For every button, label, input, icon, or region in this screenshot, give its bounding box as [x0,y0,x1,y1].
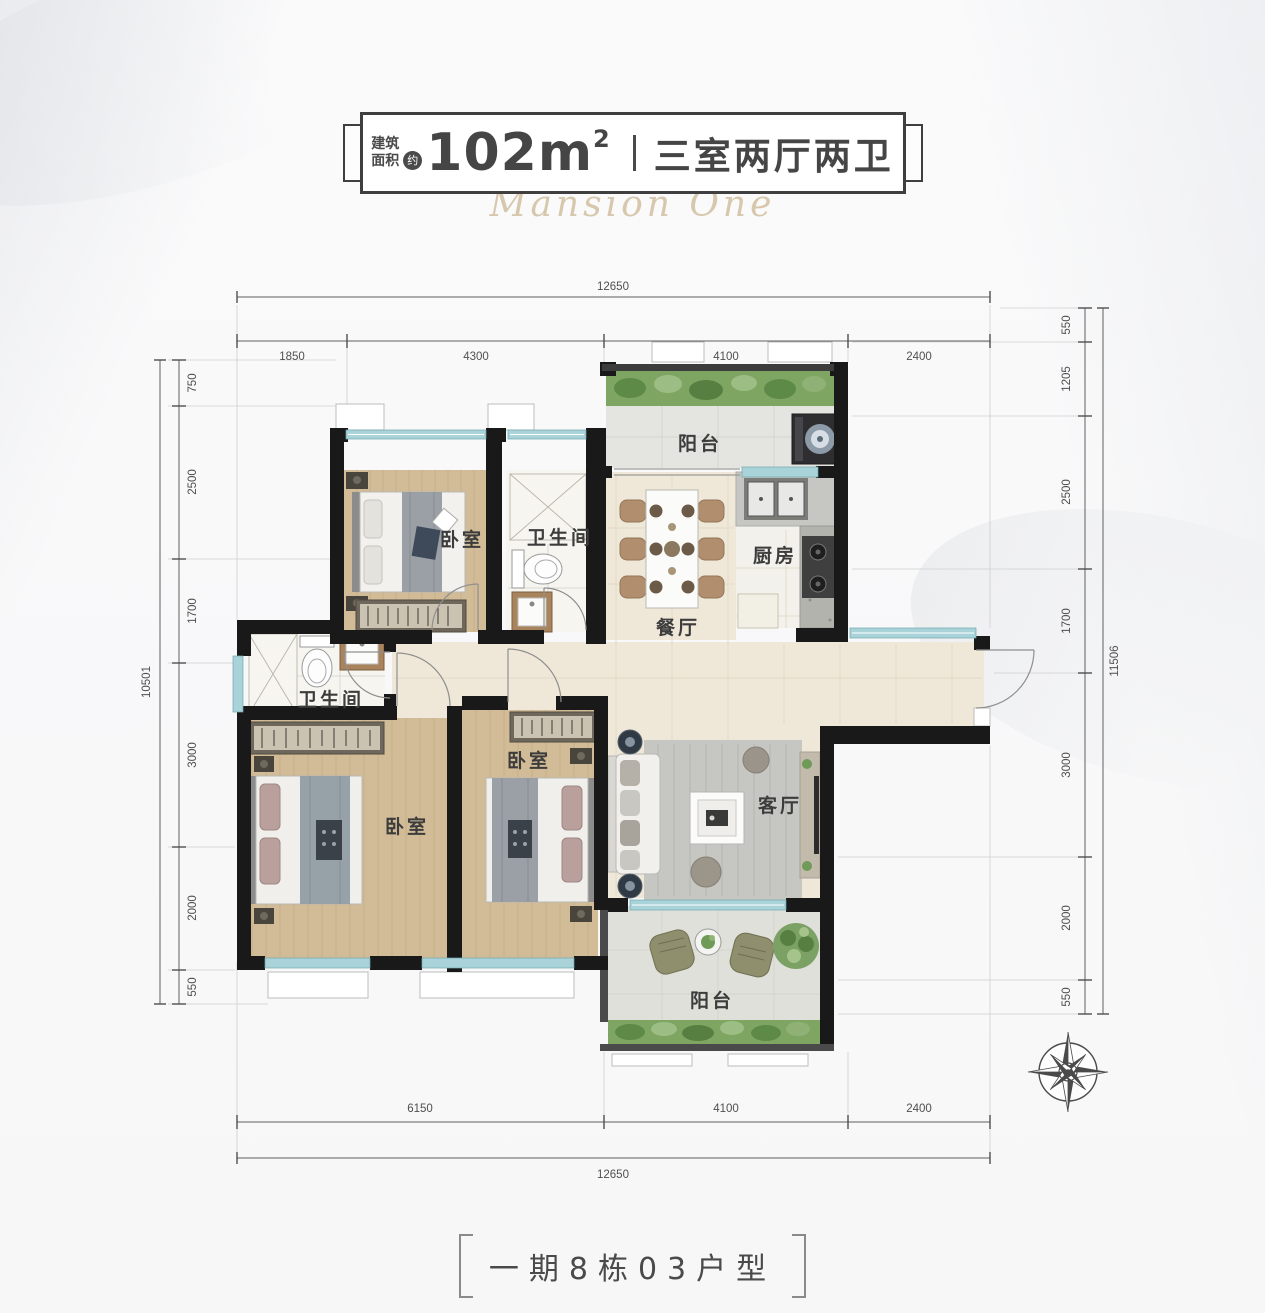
label-balcony-top: 阳台 [678,432,722,455]
dimensions-bottom: 6150 4100 2400 12650 [237,1103,990,1181]
label-bedroom-master: 卧室 [385,815,429,838]
dim-left-seg: 2000 [187,895,199,921]
dim-top-seg: 2400 [906,351,932,363]
dim-left-seg: 750 [187,373,199,392]
toilet-icon [300,636,334,687]
label-bedroom-top: 卧室 [440,528,484,551]
dining-table-icon [620,490,724,608]
fridge-icon [738,594,778,628]
wardrobe-icon [250,722,384,754]
badge-divider [633,135,636,171]
washing-machine-icon [792,414,836,464]
footer-unit-label: 一期8栋03户型 [0,1234,1265,1298]
dim-right-overall: 11506 [1109,645,1121,676]
label-living: 客厅 [758,794,802,817]
area-value: 102m2 [426,123,610,183]
compass-icon [1028,1032,1108,1112]
dim-right-seg: 550 [1061,315,1073,334]
pouf-icon [691,857,721,887]
dimensions-left: 10501 750 2500 1700 3000 2000 550 [141,360,199,1004]
potted-plant-icon [773,923,819,969]
dim-left-seg: 550 [187,977,199,996]
dim-right-seg: 550 [1061,987,1073,1006]
layout-summary: 三室两厅两卫 [654,126,894,180]
dim-right-seg: 2000 [1061,905,1073,931]
dim-left-seg: 3000 [187,742,199,768]
label-dining: 餐厅 [656,616,700,639]
dim-right-seg: 3000 [1061,752,1073,778]
dim-top-overall: 12650 [597,281,629,293]
dim-top-seg: 4300 [463,351,489,363]
dim-right-seg: 2500 [1061,479,1073,505]
dimensions-right: 550 1205 2500 1700 3000 2000 550 11506 [1061,308,1121,1014]
wardrobe-icon [510,712,596,742]
planter-top [606,370,834,406]
dimensions-top: 12650 1850 4300 4100 2400 [237,281,990,363]
balcony-table-icon [695,929,721,955]
dim-bottom-seg: 6150 [407,1103,433,1115]
label-balcony-bottom: 阳台 [690,989,734,1012]
label-bathroom-top: 卫生间 [527,526,593,549]
unit-label-text: 一期8栋03户型 [489,1244,776,1288]
left-bracket [459,1234,473,1298]
dim-left-seg: 2500 [187,469,199,495]
dim-right-seg: 1205 [1061,366,1073,392]
area-exponent: 2 [593,125,611,153]
dim-bottom-seg: 4100 [713,1103,739,1115]
planter-bottom [608,1020,820,1044]
right-bracket [792,1234,806,1298]
wardrobe-icon [356,600,466,632]
area-prefix-line1: 建筑 [371,136,399,154]
label-kitchen: 厨房 [753,544,797,567]
dim-left-overall: 10501 [141,666,153,698]
area-prefix-line2: 面积 [371,153,399,171]
dim-bottom-overall: 12650 [597,1169,629,1181]
tv-cabinet-icon [800,752,820,878]
title-badge: 建筑 面积 约 102m2 三室两厅两卫 [360,112,906,194]
label-bathroom-left: 卫生间 [298,688,364,711]
dim-bottom-seg: 2400 [906,1103,932,1115]
window-kitchen [742,467,818,477]
dim-right-seg: 1700 [1061,608,1073,634]
stove-icon [802,536,834,598]
label-bedroom-middle: 卧室 [507,749,551,772]
bed-icon [486,778,596,902]
dim-top-seg: 4100 [713,351,739,363]
badge-right-tab [906,124,923,182]
dim-left-seg: 1700 [187,598,199,624]
dim-top-seg: 1850 [279,351,305,363]
badge-left-tab [343,124,360,182]
approx-circle: 约 [403,151,422,170]
bed-icon [248,776,362,904]
window-bedroom-master [265,958,370,968]
door-entry [976,650,1034,708]
window-bedroom-middle [422,958,574,968]
sink-icon [512,592,552,632]
window-bathroom-left [233,656,243,712]
area-prefix: 建筑 面积 [371,136,399,171]
page: 建筑 面积 约 102m2 三室两厅两卫 Mansion One [0,0,1265,1313]
